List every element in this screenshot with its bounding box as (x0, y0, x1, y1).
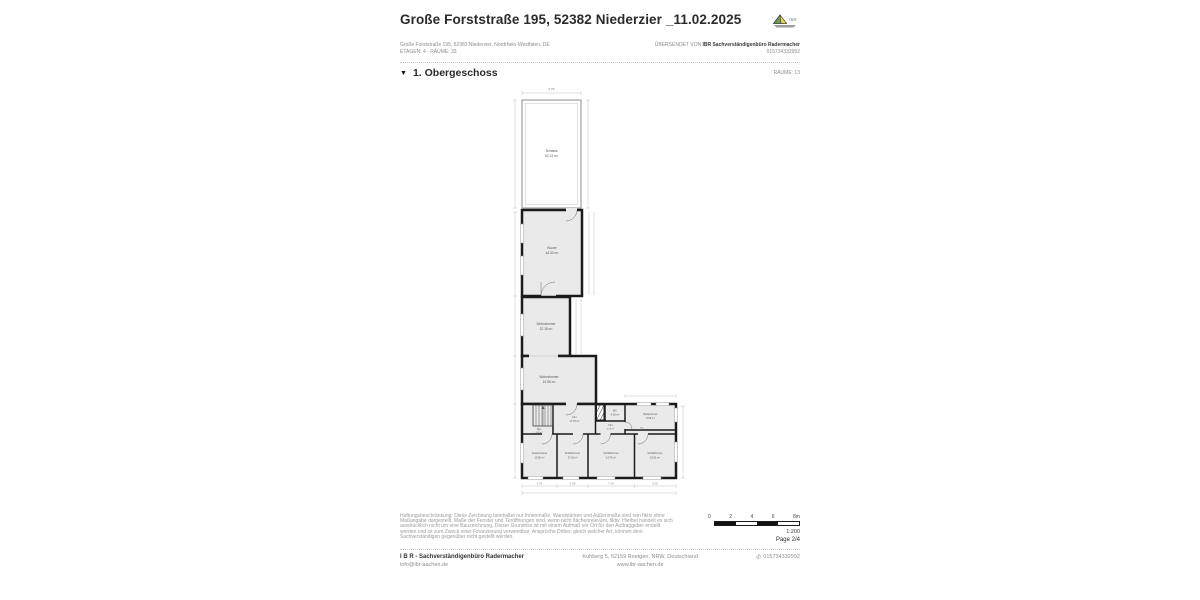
scale-tick-labels: 0 2 4 6 8m (708, 514, 800, 520)
scale-ratio: 1:200 (786, 529, 800, 535)
floor-plan-container: 5.58 (400, 80, 800, 512)
scale-bar (714, 521, 800, 526)
room-label: Flur (536, 428, 540, 431)
page-indicator: Page 2/4 (776, 537, 800, 543)
svg-text:19.59 m²: 19.59 m² (542, 380, 556, 384)
room-wohnzimmer-2: Wohnzimmer 19.59 m² (520, 354, 596, 404)
window (520, 368, 524, 390)
svg-text:8.63 m²: 8.63 m² (646, 417, 655, 420)
bottom-block: Haftungsbeschränkung: Diese Zeichnung be… (400, 514, 800, 543)
page-title: Große Forststraße 195, 52382 Niederzier … (400, 12, 741, 27)
footer-email-link[interactable]: info@ibr-aachen.de (400, 562, 524, 568)
room-label: Schlafzimmer (564, 452, 579, 455)
floor-plan: 5.58 (493, 80, 708, 512)
separator-top (400, 62, 800, 63)
disclaimer-text: Haftungsbeschränkung: Diese Zeichnung be… (400, 514, 692, 543)
room-wohnzimmer-1: Wohnzimmer 22.18 m² (520, 297, 570, 356)
sent-by-block: ÜBERSENDET VON IBR Sachverständigenbüro … (655, 42, 800, 56)
dim-top: 5.58 (548, 87, 554, 91)
floor-rooms-count: RÄUME: 13 (774, 70, 800, 76)
svg-text:14.76 m²: 14.76 m² (606, 457, 616, 460)
room-label: Schlafzimmer (647, 452, 662, 455)
phone-icon: ✆ (756, 554, 761, 561)
floor-title: 1. Obergeschoss (413, 67, 498, 79)
svg-text:7.20: 7.20 (608, 482, 614, 486)
svg-text:3.69: 3.69 (569, 482, 575, 486)
company-logo: IBR (770, 12, 800, 34)
footer-phone-number: 015734332992 (763, 554, 800, 560)
floor-section-header[interactable]: ▼ 1. Obergeschoss RÄUME: 13 (400, 67, 800, 79)
room-label: Flur (608, 424, 612, 427)
footer-address: Kuhberg 5, 52159 Roetgen, NRW, Deutschla… (582, 554, 697, 562)
collapse-triangle-icon[interactable]: ▼ (400, 70, 407, 77)
svg-text:Wohnzimmer: Wohnzimmer (539, 375, 559, 379)
property-info: Große Forststraße 195, 52382 Niederzier,… (400, 42, 800, 56)
sent-by-name: IBR Sachverständigenbüro Radermacher (702, 42, 800, 48)
svg-text:15.63 m²: 15.63 m² (650, 457, 660, 460)
document-page: Große Forststraße 195, 52382 Niederzier … (400, 0, 800, 569)
bottom-wing: Flur 4.85 m² Flur 17.76 m² WC 4.05 m² Ba… (520, 402, 678, 480)
svg-text:22.18 m²: 22.18 m² (539, 327, 553, 331)
sent-by-prefix: ÜBERSENDET VON (655, 42, 703, 48)
room-label: Schlafzimmer (603, 452, 618, 455)
room-terrasse: Terrasse 62.13 m² (522, 100, 581, 208)
separator-bottom (400, 549, 800, 550)
room-label: Badezimmer (643, 413, 657, 416)
svg-text:3.57: 3.57 (536, 482, 542, 486)
property-address: Große Forststraße 195, 52382 Niederzier,… (400, 42, 550, 49)
svg-text:17.33 m²: 17.33 m² (567, 457, 577, 460)
scale-block: 0 2 4 6 8m 1:200 Page 2/4 (698, 514, 800, 543)
property-address-block: Große Forststraße 195, 52382 Niederzier,… (400, 42, 550, 56)
svg-text:Küche: Küche (547, 246, 556, 250)
shaft (596, 405, 604, 420)
svg-text:3.02: 3.02 (652, 482, 658, 486)
room-label: Flur (640, 428, 644, 430)
footer-company-block: I B R - Sachverständigenbüro Radermacher… (400, 554, 524, 569)
footer-company-name: I B R - Sachverständigenbüro Radermacher (400, 554, 524, 560)
svg-text:Terrasse: Terrasse (545, 149, 558, 153)
footer: I B R - Sachverständigenbüro Radermacher… (400, 554, 800, 569)
property-meta: ETAGEN: 4 · RÄUME: 33 (400, 49, 550, 56)
logo-text: IBR (789, 17, 797, 22)
room-label: Flur (572, 416, 576, 419)
header: Große Forststraße 195, 52382 Niederzier … (400, 12, 800, 34)
footer-website-link[interactable]: www.ibr-aachen.de (582, 562, 697, 570)
logo-base (774, 25, 796, 28)
room-kueche: Küche 44.33 m² (520, 208, 582, 298)
svg-text:62.13 m²: 62.13 m² (545, 154, 559, 158)
window (520, 256, 524, 275)
footer-phone-block[interactable]: ✆ 015734332992 (756, 554, 800, 569)
window (520, 314, 524, 336)
svg-text:4.05 m²: 4.05 m² (610, 414, 619, 417)
room-label: Kinderzimmer (531, 452, 547, 455)
svg-text:15.80 m²: 15.80 m² (534, 457, 544, 460)
svg-text:17.76 m²: 17.76 m² (569, 420, 579, 423)
svg-text:44.33 m²: 44.33 m² (545, 251, 559, 255)
bottom-dimensions: 3.57 3.69 7.20 3.02 (522, 482, 676, 496)
window (520, 224, 524, 243)
footer-address-block: Kuhberg 5, 52159 Roetgen, NRW, Deutschla… (582, 554, 697, 569)
sent-by-phone: 015734332992 (655, 49, 800, 56)
room-label: WC (612, 410, 616, 413)
svg-text:Wohnzimmer: Wohnzimmer (536, 322, 556, 326)
